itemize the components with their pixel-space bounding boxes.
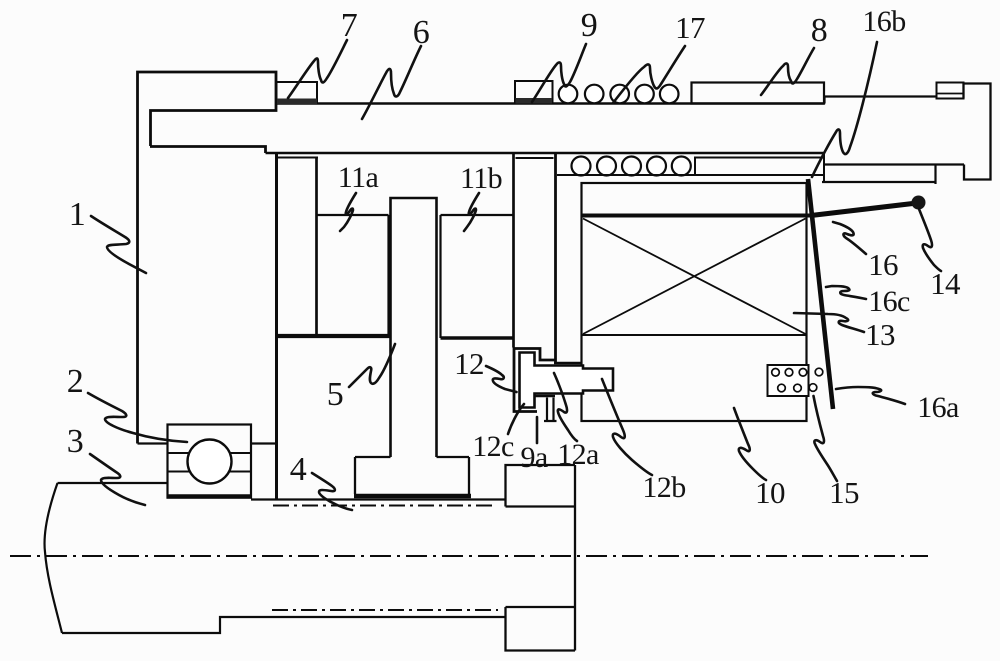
svg-text:5: 5 [327, 376, 343, 413]
svg-text:9: 9 [581, 7, 597, 44]
svg-text:11b: 11b [460, 162, 502, 195]
svg-text:1: 1 [69, 196, 85, 233]
svg-text:12a: 12a [557, 438, 599, 471]
svg-text:11a: 11a [338, 161, 379, 194]
svg-text:15: 15 [829, 475, 859, 510]
svg-text:16c: 16c [868, 285, 910, 318]
svg-text:16: 16 [868, 247, 898, 282]
svg-text:17: 17 [675, 10, 705, 45]
svg-text:16a: 16a [917, 391, 959, 424]
svg-text:16b: 16b [862, 5, 905, 38]
svg-text:13: 13 [865, 317, 895, 352]
svg-text:10: 10 [755, 475, 785, 510]
svg-text:8: 8 [811, 12, 827, 49]
svg-text:7: 7 [341, 7, 358, 44]
svg-text:4: 4 [290, 451, 307, 488]
svg-text:12: 12 [454, 346, 484, 381]
svg-text:9a: 9a [520, 441, 547, 474]
svg-text:3: 3 [67, 423, 83, 460]
svg-text:14: 14 [930, 266, 961, 301]
svg-text:2: 2 [67, 363, 83, 400]
svg-text:12b: 12b [642, 471, 685, 504]
